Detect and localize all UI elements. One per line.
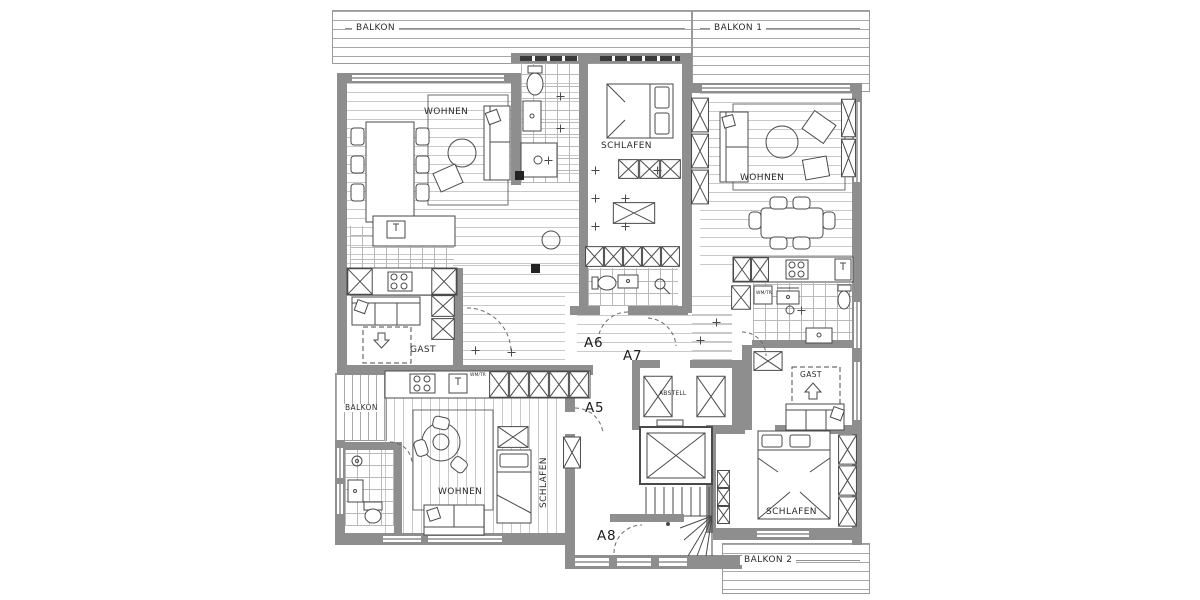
elevator — [640, 427, 712, 484]
window — [854, 302, 860, 348]
apartment-label-a6: A6 — [584, 337, 603, 351]
floor-a7-entry — [692, 296, 732, 360]
a7-bed — [758, 431, 830, 519]
window — [757, 531, 809, 537]
floor-a5-bath-tiles — [345, 450, 397, 526]
room-label-a6-living: WOHNEN — [424, 108, 468, 117]
floor-a6-bath1-tiles — [521, 63, 579, 183]
room-label-a6-guest: GAST — [410, 346, 436, 355]
window — [659, 558, 687, 566]
label-laundry-left: WM/TR — [470, 374, 486, 379]
window — [600, 56, 680, 61]
wall — [690, 360, 732, 368]
floor-a6-corridor — [453, 265, 579, 296]
label-laundry-right: WM/TR — [756, 292, 772, 297]
wall — [752, 340, 852, 348]
window — [352, 75, 504, 81]
wall — [337, 73, 347, 375]
wall — [511, 83, 521, 185]
apartment-label-a7: A7 — [623, 350, 642, 364]
balcony-label-top-left: BALKON — [352, 24, 399, 33]
window — [702, 85, 850, 91]
apartment-label-a8: A8 — [597, 530, 616, 544]
wall — [579, 53, 588, 185]
wall — [570, 306, 600, 315]
window — [854, 362, 860, 420]
wall — [453, 268, 463, 365]
wall — [732, 360, 742, 430]
wall — [565, 398, 575, 412]
floor-a6-hall — [463, 296, 565, 365]
window — [854, 102, 860, 182]
wall — [706, 425, 745, 434]
a6-guest-sofa — [352, 297, 420, 325]
wall — [628, 306, 688, 315]
staircase — [610, 484, 712, 556]
room-label-a7-living: WOHNEN — [740, 174, 784, 183]
floor-a6-kitchen-tiles — [350, 226, 454, 296]
wall — [632, 368, 640, 430]
window — [337, 448, 343, 478]
wall — [579, 185, 588, 306]
wall — [337, 365, 593, 375]
window — [383, 536, 421, 542]
room-label-storage: ABSTELL — [659, 391, 686, 397]
a6-guest-bed-outline — [363, 327, 411, 363]
floor-a6-bath2-tiles — [588, 268, 678, 306]
wall — [565, 434, 575, 555]
wall — [706, 434, 716, 533]
floor-plan: BALKON BALKON 1 BALKON 2 BALKON WOHNEN S… — [0, 0, 1200, 600]
balcony-bottom-right — [722, 543, 870, 594]
a6-guest-wardrobe — [432, 296, 455, 340]
wall — [775, 425, 862, 434]
room-label-a7-guest: GAST — [800, 371, 822, 379]
balcony-label-top-right: BALKON 1 — [710, 24, 766, 33]
a7-guest-wardrobe — [754, 352, 782, 371]
balcony-label-bottom-right: BALKON 2 — [740, 556, 796, 565]
room-label-a5-bedroom: SCHLAFEN — [540, 457, 549, 508]
wall — [340, 442, 402, 450]
floor-a5-living — [385, 398, 565, 533]
a5-kitchen-counter — [385, 371, 590, 398]
storage-cabinets — [644, 376, 725, 426]
window — [337, 484, 343, 514]
room-label-a7-bedroom: SCHLAFEN — [766, 508, 817, 517]
balcony-label-small: BALKON — [341, 404, 382, 412]
wall — [742, 345, 752, 430]
a6-bed — [607, 84, 673, 138]
wall — [394, 450, 402, 534]
a6-wardrobes — [586, 160, 681, 267]
wall — [682, 53, 692, 313]
room-label-a5-living: WOHNEN — [438, 488, 482, 497]
apartment-label-a5: A5 — [585, 402, 604, 416]
window — [575, 558, 609, 566]
window — [520, 56, 578, 61]
window — [428, 536, 502, 542]
window — [617, 558, 651, 566]
room-label-a6-bedroom: SCHLAFEN — [601, 142, 652, 151]
